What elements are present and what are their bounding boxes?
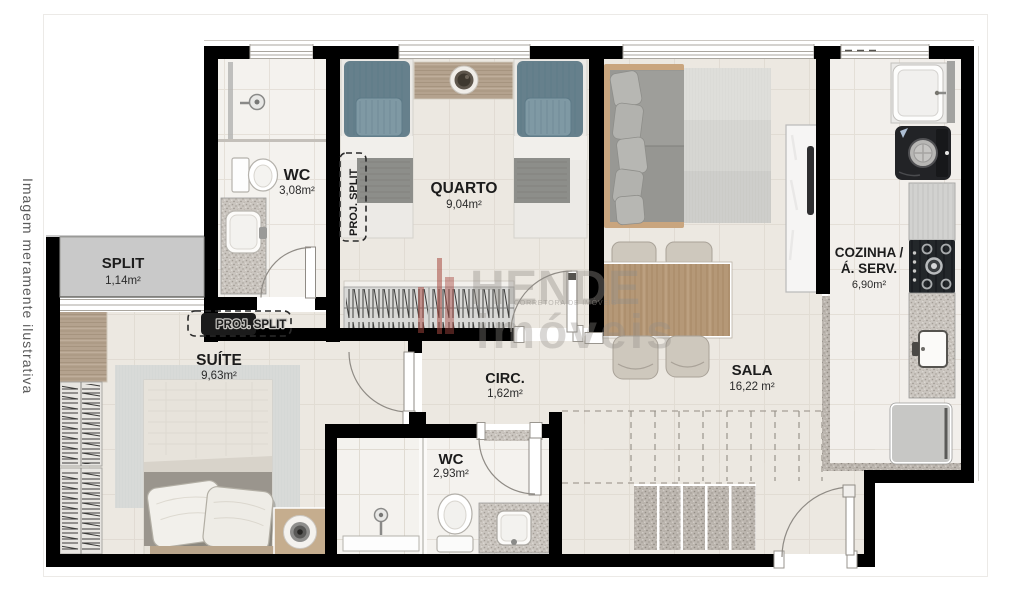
svg-text:1,14m²: 1,14m² <box>105 275 141 287</box>
svg-text:3,08m²: 3,08m² <box>279 185 315 197</box>
svg-text:COZINHA /: COZINHA / <box>835 245 904 260</box>
svg-text:SALA: SALA <box>732 362 773 379</box>
svg-text:Á. SERV.: Á. SERV. <box>841 261 897 276</box>
svg-text:9,04m²: 9,04m² <box>446 199 482 211</box>
svg-text:Imagem meramente ilustrativa: Imagem meramente ilustrativa <box>20 178 36 394</box>
svg-text:6,90m²: 6,90m² <box>852 279 887 291</box>
svg-text:CIRC.: CIRC. <box>485 371 524 387</box>
svg-text:9,63m²: 9,63m² <box>201 370 237 382</box>
svg-text:QUARTO: QUARTO <box>431 180 498 197</box>
svg-text:PROJ. SPLIT: PROJ. SPLIT <box>216 319 286 331</box>
svg-text:16,22 m²: 16,22 m² <box>729 381 775 393</box>
svg-text:2,93m²: 2,93m² <box>433 468 469 480</box>
svg-text:imóveis: imóveis <box>476 306 676 359</box>
svg-text:1,62m²: 1,62m² <box>487 388 523 400</box>
svg-text:SPLIT: SPLIT <box>102 255 145 272</box>
svg-text:WC: WC <box>439 451 464 468</box>
svg-text:WC: WC <box>284 167 311 184</box>
svg-text:PROJ. SPLIT: PROJ. SPLIT <box>348 168 360 236</box>
svg-text:SUÍTE: SUÍTE <box>196 352 242 369</box>
